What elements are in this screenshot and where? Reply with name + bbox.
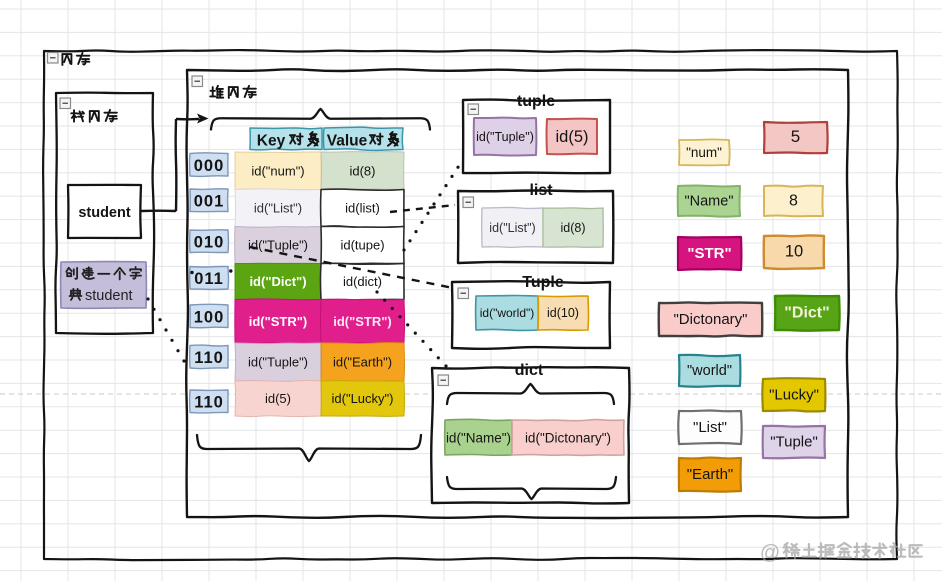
svg-text:id("Tuple"): id("Tuple") xyxy=(476,130,534,144)
svg-text:id(8): id(8) xyxy=(560,221,585,235)
svg-text:id("Dict"): id("Dict") xyxy=(249,274,306,289)
svg-text:id("num"): id("num") xyxy=(251,163,304,178)
svg-text:id(tupe): id(tupe) xyxy=(340,238,384,253)
svg-text:id("Dictonary"): id("Dictonary") xyxy=(525,431,611,446)
svg-text:"Lucky": "Lucky" xyxy=(769,387,819,404)
svg-text:"Tuple": "Tuple" xyxy=(770,434,818,451)
svg-text:"STR": "STR" xyxy=(687,245,731,262)
svg-text:"num": "num" xyxy=(686,145,722,160)
svg-text:011: 011 xyxy=(194,270,224,288)
svg-text:Key: Key xyxy=(257,133,286,150)
svg-text:id("STR"): id("STR") xyxy=(249,314,308,329)
svg-text:id("Earth"): id("Earth") xyxy=(333,355,392,370)
svg-text:Tuple: Tuple xyxy=(522,274,564,291)
svg-text:8: 8 xyxy=(789,193,798,210)
svg-text:Value: Value xyxy=(327,133,368,150)
svg-text:id("Lucky"): id("Lucky") xyxy=(332,391,394,406)
svg-text:id("Tuple"): id("Tuple") xyxy=(248,355,308,370)
svg-text:010: 010 xyxy=(194,234,225,252)
svg-text:100: 100 xyxy=(194,309,225,327)
svg-text:id(dict): id(dict) xyxy=(343,274,382,289)
svg-text:5: 5 xyxy=(791,127,800,146)
svg-text:"List": "List" xyxy=(693,419,727,436)
svg-text:110: 110 xyxy=(194,349,224,367)
svg-text:110: 110 xyxy=(194,394,224,412)
svg-text:tuple: tuple xyxy=(517,93,555,110)
svg-text:id(5): id(5) xyxy=(265,391,291,406)
svg-text:id(10): id(10) xyxy=(547,306,579,320)
svg-text:id("List"): id("List") xyxy=(489,221,535,235)
svg-text:id("STR"): id("STR") xyxy=(333,314,392,329)
svg-text:id(5): id(5) xyxy=(555,128,588,146)
svg-text:list: list xyxy=(529,182,553,199)
svg-text:dict: dict xyxy=(515,362,544,379)
svg-text:000: 000 xyxy=(194,157,225,175)
svg-text:student: student xyxy=(85,288,133,304)
svg-text:10: 10 xyxy=(785,243,803,261)
svg-text:"Earth": "Earth" xyxy=(687,466,734,483)
svg-text:"Dictonary": "Dictonary" xyxy=(673,311,747,328)
svg-text:id("Tuple"): id("Tuple") xyxy=(248,238,308,253)
svg-text:"Name": "Name" xyxy=(685,194,734,210)
svg-text:student: student xyxy=(78,205,131,221)
svg-text:@: @ xyxy=(760,542,780,564)
svg-text:id("Name"): id("Name") xyxy=(446,431,511,446)
svg-text:id("List"): id("List") xyxy=(254,201,302,216)
svg-text:001: 001 xyxy=(194,193,225,211)
svg-text:id(8): id(8) xyxy=(349,163,375,178)
svg-text:id("world"): id("world") xyxy=(480,306,535,320)
svg-text:"world": "world" xyxy=(687,363,732,379)
svg-text:id(list): id(list) xyxy=(345,201,380,216)
svg-text:"Dict": "Dict" xyxy=(784,305,829,322)
